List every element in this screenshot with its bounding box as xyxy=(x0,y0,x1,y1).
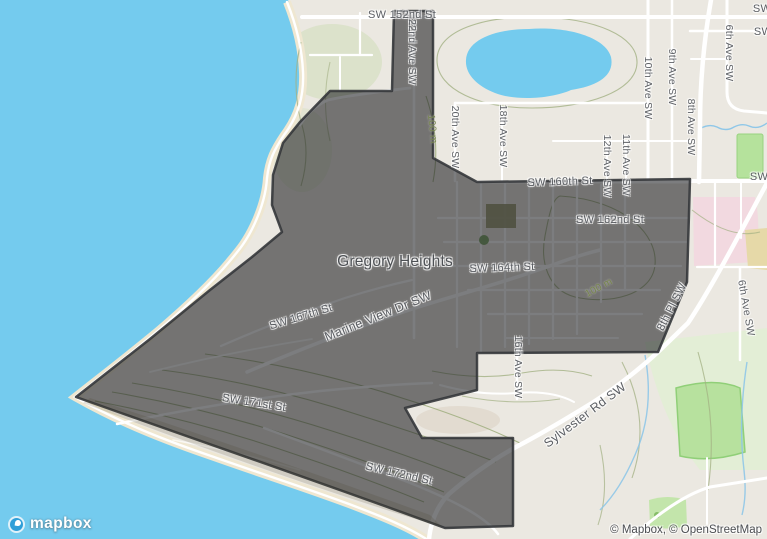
mapbox-logo[interactable]: mapbox xyxy=(8,515,92,533)
mapbox-logo-icon xyxy=(8,516,25,533)
map-graphics xyxy=(0,0,767,539)
map-canvas[interactable]: SW 152nd St SW SW SW SW 160th St SW 162n… xyxy=(0,0,767,539)
landuse-beige xyxy=(745,228,767,270)
attribution[interactable]: © Mapbox, © OpenStreetMap xyxy=(610,524,762,536)
park-top-right xyxy=(737,134,763,178)
mapbox-logo-text: mapbox xyxy=(30,515,92,533)
